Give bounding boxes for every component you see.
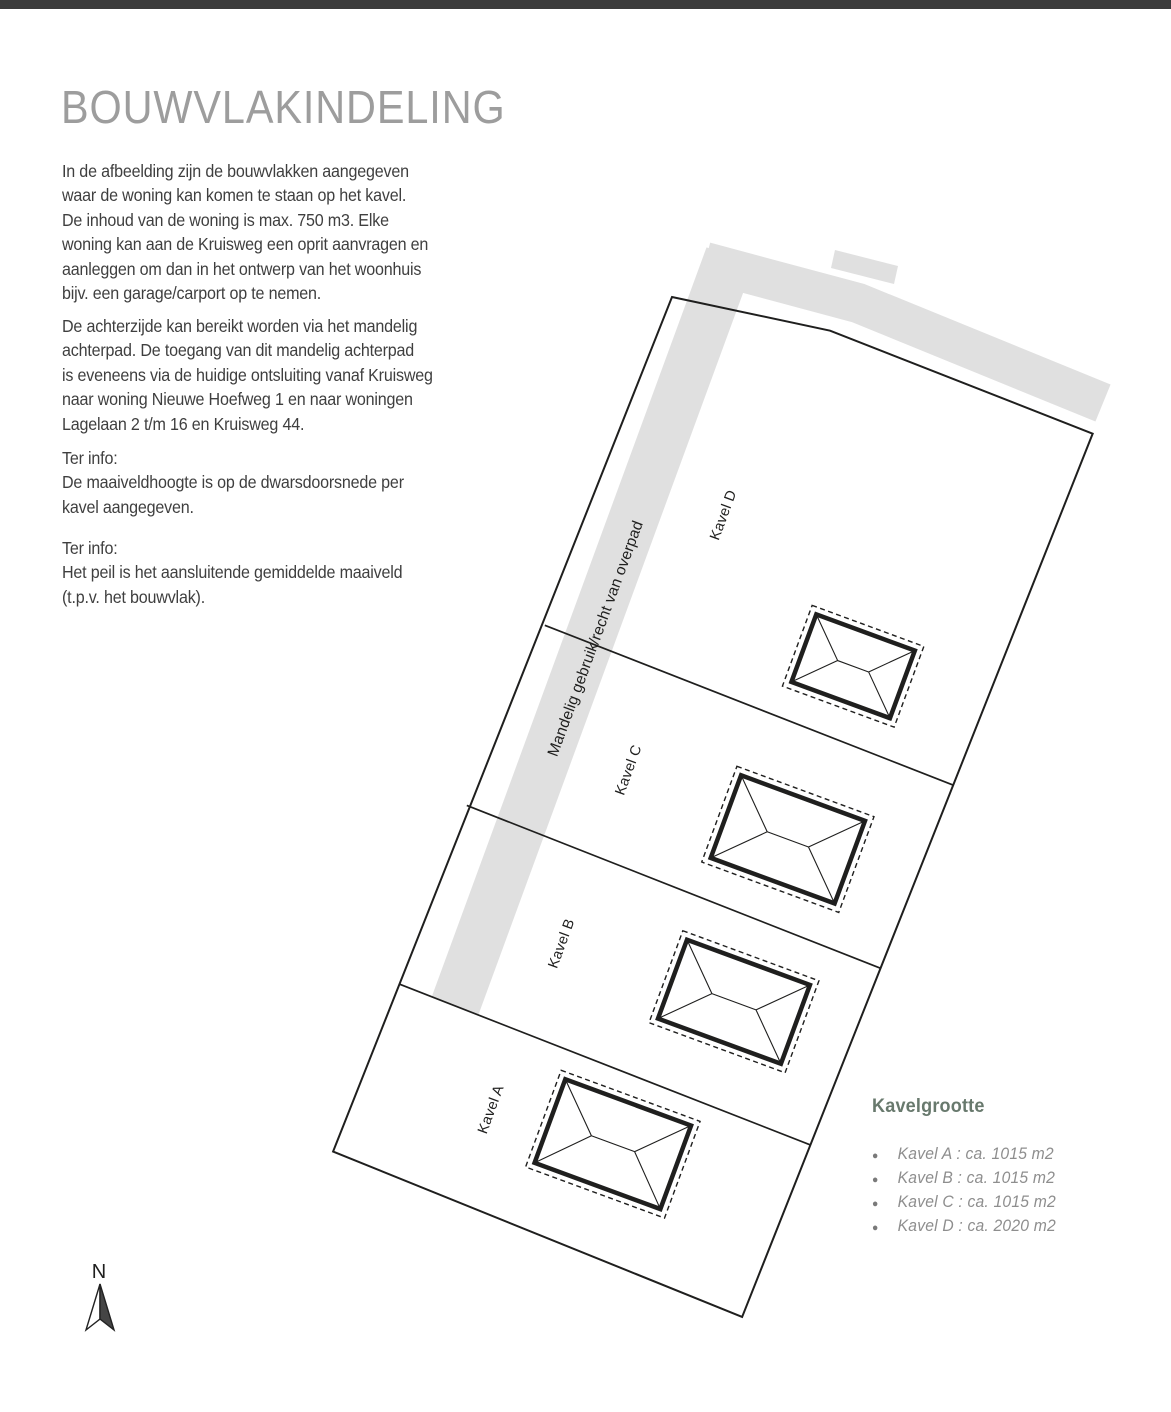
- plot-size-legend: Kavelgrootte ● Kavel A : ca. 1015 m2 ● K…: [872, 1096, 1119, 1241]
- legend-item-text: Kavel D : ca. 2020 m2: [898, 1217, 1056, 1236]
- parcel-label-a: Kavel A: [475, 1083, 508, 1136]
- bullet-icon: ●: [872, 1222, 898, 1234]
- bullet-icon: ●: [872, 1174, 898, 1186]
- parcel-label-d: Kavel D: [707, 488, 740, 542]
- bullet-icon: ●: [872, 1150, 898, 1162]
- brochure-page: BOUWVLAKINDELING In de afbeelding zijn d…: [0, 0, 1171, 1412]
- legend-heading: Kavelgrootte: [872, 1096, 1119, 1118]
- legend-item-kavel-a: ● Kavel A : ca. 1015 m2: [872, 1145, 1119, 1169]
- legend-item-text: Kavel B : ca. 1015 m2: [898, 1169, 1055, 1188]
- legend-item-list: ● Kavel A : ca. 1015 m2 ● Kavel B : ca. …: [872, 1145, 1119, 1241]
- legend-item-kavel-d: ● Kavel D : ca. 2020 m2: [872, 1217, 1119, 1241]
- building-footprint-kavel-a: [526, 1070, 700, 1218]
- north-arrow-right-half: [100, 1284, 114, 1330]
- parcel-label-b: Kavel B: [546, 917, 579, 971]
- road-area: [705, 262, 1103, 403]
- legend-item-kavel-b: ● Kavel B : ca. 1015 m2: [872, 1169, 1119, 1193]
- building-footprint-kavel-d: [782, 605, 923, 727]
- legend-item-text: Kavel A : ca. 1015 m2: [898, 1145, 1054, 1164]
- legend-item-text: Kavel C : ca. 1015 m2: [898, 1193, 1056, 1212]
- north-arrow: N: [86, 1261, 114, 1330]
- bullet-icon: ●: [872, 1198, 898, 1210]
- north-arrow-left-half: [86, 1284, 100, 1330]
- building-footprint-kavel-c: [702, 766, 874, 912]
- parcel-label-c: Kavel C: [612, 743, 645, 797]
- north-label: N: [92, 1261, 106, 1283]
- legend-item-kavel-c: ● Kavel C : ca. 1015 m2: [872, 1193, 1119, 1217]
- building-footprint-kavel-b: [649, 931, 819, 1073]
